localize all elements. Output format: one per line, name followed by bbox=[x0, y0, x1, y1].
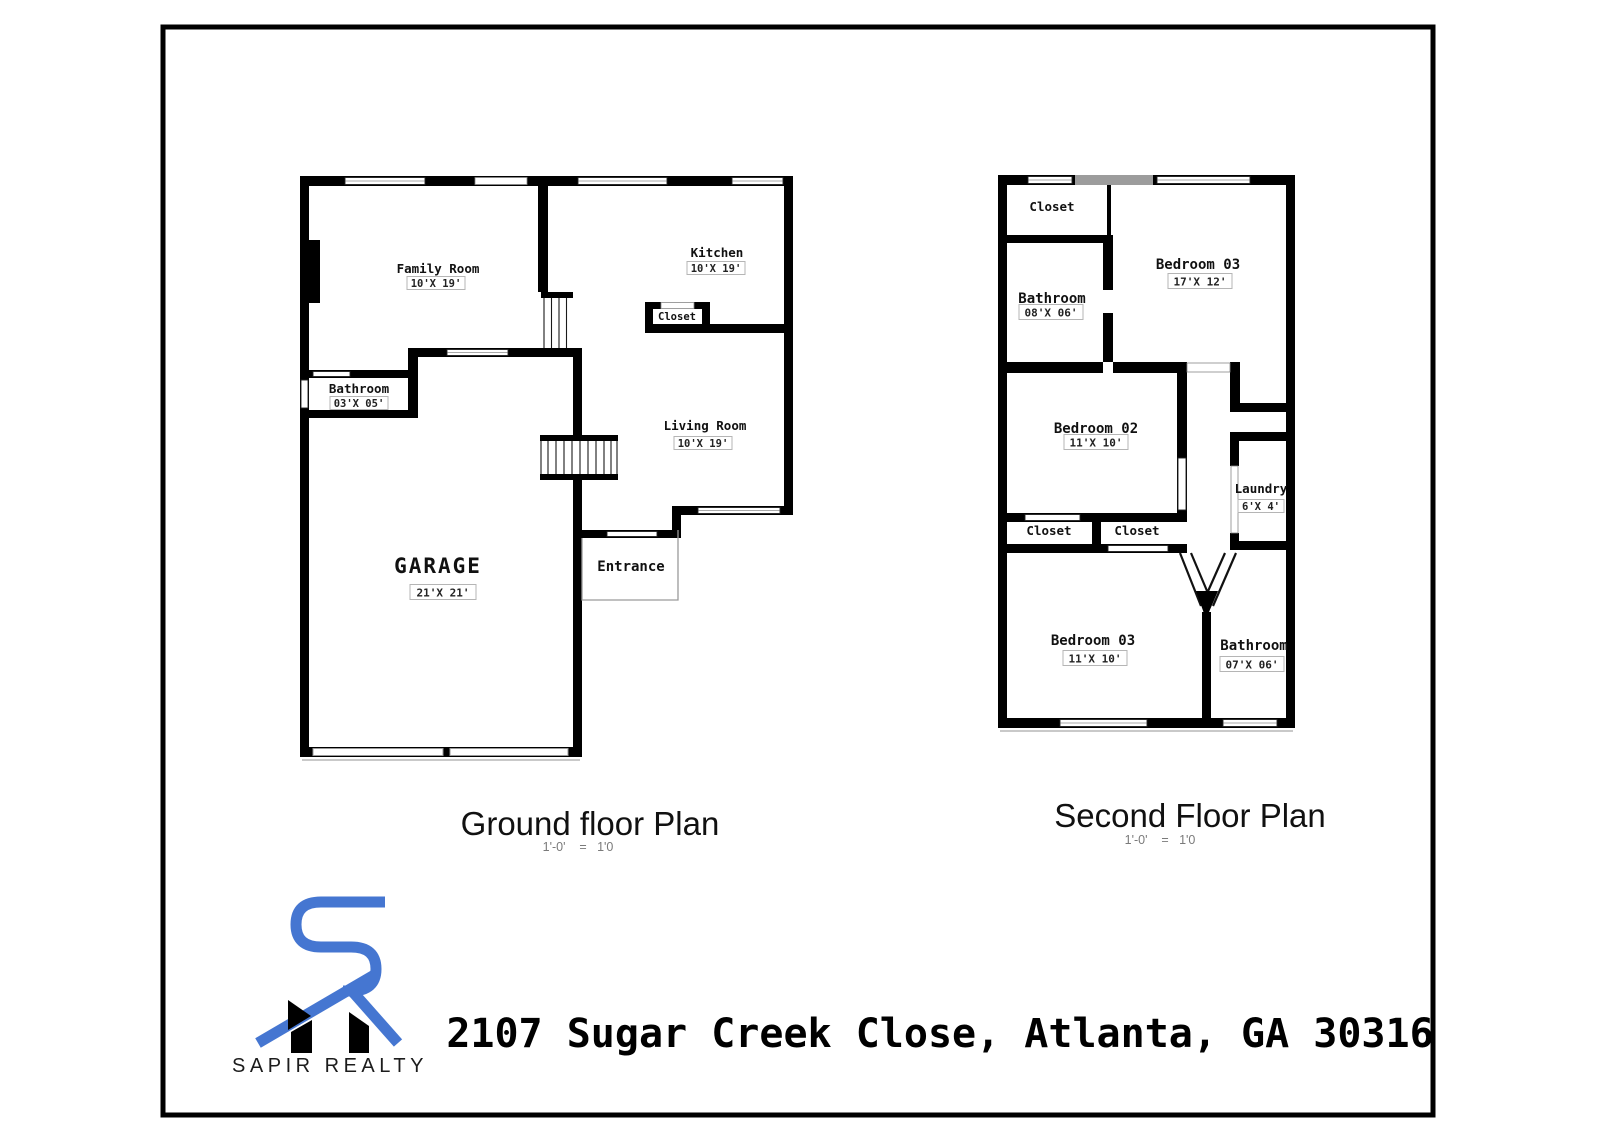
room-label-ground-bathroom: Bathroom 03'X 05' bbox=[329, 381, 390, 410]
room-dims: 10'X 19' bbox=[691, 263, 742, 275]
room-label-garage: GARAGE 21'X 21' bbox=[394, 554, 482, 600]
room-label-entrance: Entrance bbox=[597, 559, 664, 575]
room-name: Closet bbox=[1114, 523, 1159, 538]
floor-plan-sheet: Family Room 10'X 19' Kitchen 10'X 19' Cl… bbox=[0, 0, 1600, 1131]
plan-titles: Ground floor Plan 1'-0' = 1'0 Second Flo… bbox=[461, 797, 1326, 854]
room-name: Living Room bbox=[664, 418, 747, 433]
room-name: Family Room bbox=[397, 261, 480, 276]
room-name: Bathroom bbox=[1220, 638, 1287, 654]
staircase-second-floor bbox=[1180, 553, 1236, 619]
room-label-laundry: Laundry 6'X 4' bbox=[1235, 481, 1288, 513]
room-dims: 6'X 4' bbox=[1242, 501, 1280, 513]
room-dims: 17'X 12' bbox=[1174, 276, 1227, 289]
logo-wordmark: SAPIR REALTY bbox=[232, 1055, 428, 1077]
wall-gray-segment bbox=[1075, 175, 1153, 185]
room-name: GARAGE bbox=[394, 554, 482, 578]
room-label-closet-right: Closet bbox=[1114, 523, 1159, 538]
room-dims: 21'X 21' bbox=[417, 587, 470, 600]
room-dims: 08'X 06' bbox=[1025, 307, 1078, 320]
room-name: Closet bbox=[1026, 523, 1071, 538]
stair-apex bbox=[1196, 591, 1218, 619]
room-label-living-room: Living Room 10'X 19' bbox=[664, 418, 747, 450]
ground-floor-plan: Family Room 10'X 19' Kitchen 10'X 19' Cl… bbox=[300, 176, 793, 760]
second-floor-title: Second Floor Plan bbox=[1054, 797, 1326, 834]
room-label-closet-left: Closet bbox=[1026, 523, 1071, 538]
room-label-closet-top: Closet bbox=[1029, 199, 1074, 214]
second-floor-plan: Closet Bathroom 08'X 06' Bedroom 03 17'X… bbox=[998, 175, 1295, 731]
room-dims: 11'X 10' bbox=[1070, 437, 1123, 450]
room-name: Bathroom bbox=[329, 381, 390, 396]
room-name: Entrance bbox=[597, 559, 664, 575]
room-name: Kitchen bbox=[691, 245, 744, 260]
logo-right-leg bbox=[349, 1012, 369, 1053]
room-name: Bedroom 03 bbox=[1156, 257, 1240, 273]
room-dims: 10'X 19' bbox=[678, 438, 729, 450]
room-name: Laundry bbox=[1235, 481, 1288, 496]
room-name: Closet bbox=[658, 311, 696, 323]
room-label-kitchen: Kitchen 10'X 19' bbox=[687, 245, 745, 275]
room-dims: 11'X 10' bbox=[1069, 653, 1122, 666]
room-label-bedroom-03-upper: Bedroom 03 17'X 12' bbox=[1156, 257, 1240, 289]
room-name: Bedroom 03 bbox=[1051, 633, 1135, 649]
room-name: Closet bbox=[1029, 199, 1074, 214]
room-label-bedroom-03-lower: Bedroom 03 11'X 10' bbox=[1051, 633, 1135, 666]
property-address: 2107 Sugar Creek Close, Atlanta, GA 3031… bbox=[446, 1011, 1433, 1057]
staircase-main bbox=[540, 435, 618, 480]
room-label-kitchen-closet: Closet bbox=[658, 311, 696, 323]
staircase-upper bbox=[541, 292, 573, 348]
room-label-bathroom-bottom: Bathroom 07'X 06' bbox=[1220, 638, 1288, 672]
sapir-realty-logo: SAPIR REALTY bbox=[232, 902, 428, 1077]
room-label-family-room: Family Room 10'X 19' bbox=[397, 261, 480, 290]
room-dims: 07'X 06' bbox=[1226, 659, 1279, 672]
ground-floor-title: Ground floor Plan bbox=[461, 805, 720, 842]
room-dims: 10'X 19' bbox=[411, 278, 462, 290]
room-dims: 03'X 05' bbox=[334, 398, 385, 410]
ground-floor-scale: 1'-0' = 1'0 bbox=[543, 840, 614, 854]
room-label-bathroom-top: Bathroom 08'X 06' bbox=[1018, 291, 1085, 320]
room-label-bedroom-02: Bedroom 02 11'X 10' bbox=[1054, 421, 1138, 450]
floor-plan-canvas: Family Room 10'X 19' Kitchen 10'X 19' Cl… bbox=[0, 0, 1600, 1131]
second-floor-scale: 1'-0' = 1'0 bbox=[1125, 833, 1196, 847]
